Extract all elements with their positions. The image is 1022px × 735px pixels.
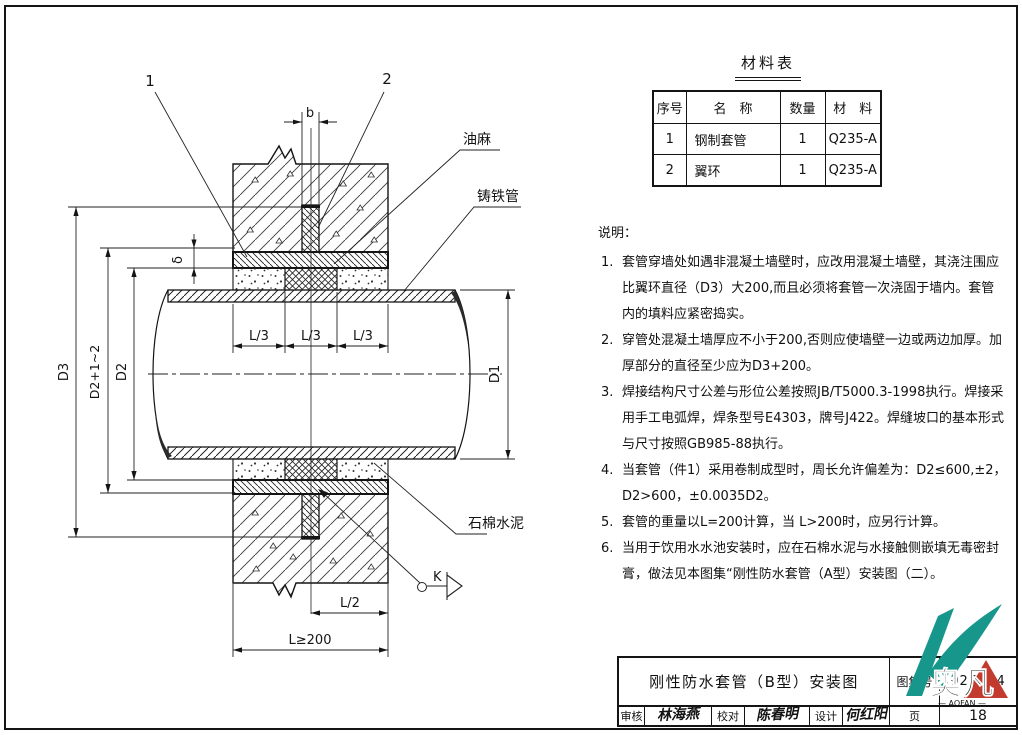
signature: 林海燕 [657,702,700,724]
cell-material: Q235-A [825,124,881,155]
materials-table-title: 材料表 [652,52,884,81]
materials-table-region: 材料表 序号 名 称 数量 材 料 1 钢制套管 1 Q235-A 2 翼环 1… [652,52,884,187]
dim-l3-label-2: L/3 [301,329,321,344]
notes-title: 说明： [598,221,1007,247]
wing-ring-lower [301,494,320,539]
dim-d3-label: D3 [57,363,72,381]
note-number: 4. [601,458,613,484]
designer-signature: 何红阳 [843,707,890,725]
note-number: 3. [601,380,613,406]
materials-table-header-row: 序号 名 称 数量 材 料 [653,91,881,124]
cell-qty: 1 [780,124,825,155]
cell-material: Q235-A [825,155,881,187]
col-header-seq: 序号 [653,91,686,124]
logo-subtext: — AOFAN — [938,699,986,708]
detail-k-label: K [433,570,442,585]
note-number: 5. [601,510,613,536]
proofreader-signature: 陈春明 [745,707,810,725]
dim-l2-label: L/2 [340,596,360,611]
proofreader-label: 校对 [712,707,745,725]
steel-sleeve-lower [233,480,388,494]
note-item-6: 6. 当用于饮用水水池安装时，应在石棉水泥与水接触侧嵌填无毒密封膏，做法见本图集… [598,536,1007,588]
reviewer-signature: 林海燕 [645,707,712,725]
note-number: 1. [601,250,613,276]
label-oakum: 油麻 [463,132,491,148]
cast-iron-pipe [148,290,502,459]
signature: 陈春明 [756,702,799,724]
materials-table-title-text: 材料表 [735,52,801,81]
note-item-1: 1. 套管穿墙处如遇非混凝土墙壁时，应改用混凝土墙壁，其浇注围应比翼环直径（D3… [598,250,1007,328]
steel-sleeve-upper [233,252,388,268]
callout-1: 1 [145,72,155,90]
cell-name: 翼环 [686,155,780,187]
reviewer-label: 审核 [619,707,645,725]
wing-ring-upper [301,205,320,252]
materials-table: 序号 名 称 数量 材 料 1 钢制套管 1 Q235-A 2 翼环 1 Q23… [652,90,882,187]
packing-lower [233,459,388,480]
note-text: 当套管（件1）采用卷制成型时，周长允许偏差为：D2≤600,±2，D2>600，… [622,463,1007,504]
note-number: 2. [601,328,613,354]
cell-seq: 2 [653,155,686,187]
table-row: 2 翼环 1 Q235-A [653,155,881,187]
dim-l3-label-3: L/3 [353,329,373,344]
dim-d2-label: D2 [115,363,130,381]
dim-delta [100,234,235,284]
label-cast-iron-pipe: 铸铁管 [477,189,519,205]
notes-section: 说明： 1. 套管穿墙处如遇非混凝土墙壁时，应改用混凝土墙壁，其浇注围应比翼环直… [598,221,1007,588]
drawing-sheet: b δ D3 D2+1~2 [0,0,1022,735]
note-item-2: 2. 穿管处混凝土墙厚应不小于200,否则应使墙壁一边或两边加厚。加厚部分的直径… [598,328,1007,380]
dim-delta-label: δ [171,256,186,264]
designer-label: 设计 [810,707,843,725]
col-header-name: 名 称 [686,91,780,124]
dim-d2plus-label: D2+1~2 [87,345,102,399]
aofan-logo: 奥凡 — AOFAN — [898,598,1018,730]
signature: 何红阳 [845,702,888,724]
note-item-4: 4. 当套管（件1）采用卷制成型时，周长允许偏差为：D2≤600,±2，D2>6… [598,458,1007,510]
note-number: 6. [601,536,613,562]
dim-b-label: b [306,106,314,121]
dim-d1-label: D1 [488,365,503,383]
drawing-title: 刚性防水套管（B型）安装图 [619,658,890,705]
note-item-3: 3. 焊接结构尺寸公差与形位公差按照JB/T5000.3-1998执行。焊接采用… [598,380,1007,458]
note-text: 套管的重量以L=200计算，当 L>200时，应另行计算。 [622,515,946,530]
col-header-material: 材 料 [825,91,881,124]
logo-chars: 奥凡 [930,666,996,702]
pipe-break-left [153,290,168,459]
note-text: 穿管处混凝土墙厚应不小于200,否则应使墙壁一边或两边加厚。加厚部分的直径至少应… [622,333,1002,374]
dim-l200-label: L≥200 [289,633,332,648]
cell-qty: 1 [780,155,825,187]
cell-name: 钢制套管 [686,124,780,155]
table-row: 1 钢制套管 1 Q235-A [653,124,881,155]
packing-upper [233,268,388,290]
note-text: 套管穿墙处如遇非混凝土墙壁时，应改用混凝土墙壁，其浇注围应比翼环直径（D3）大2… [622,255,999,322]
note-item-5: 5. 套管的重量以L=200计算，当 L>200时，应另行计算。 [598,510,1007,536]
cell-seq: 1 [653,124,686,155]
callout-2: 2 [382,70,392,88]
note-text: 当用于饮用水水池安装时，应在石棉水泥与水接触侧嵌填无毒密封膏，做法见本图集“刚性… [622,541,999,582]
label-asbestos-cement: 石棉水泥 [468,515,524,532]
dim-l3-label-1: L/3 [249,329,269,344]
col-header-qty: 数量 [780,91,825,124]
note-text: 焊接结构尺寸公差与形位公差按照JB/T5000.3-1998执行。焊接采用手工电… [622,385,1004,452]
